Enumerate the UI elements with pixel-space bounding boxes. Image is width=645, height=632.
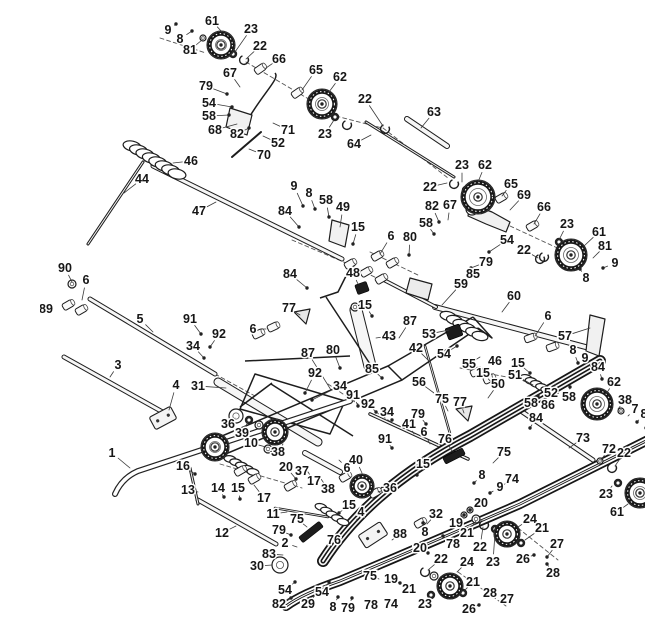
callout-leader [376,337,381,338]
callout-leader [361,135,371,140]
callout-leader [229,526,236,529]
callout-number-13: 13 [181,483,195,497]
callout-number-64: 64 [347,137,361,151]
callout-number-85: 85 [466,267,480,281]
fastener-dot [297,225,300,228]
callout-number-84: 84 [278,204,292,218]
fastener-dot [578,267,581,270]
shaft-rod-fill [90,299,215,374]
callout-number-81: 81 [183,43,197,57]
shaft-rod-fill [366,122,454,177]
fastener-dot [468,508,471,511]
fastener-dot [247,126,250,129]
callout-number-36: 36 [221,417,235,431]
callout-number-9: 9 [612,256,619,270]
callout-number-10: 10 [244,436,258,450]
callout-number-52: 52 [271,136,285,150]
callout-leader [297,193,303,206]
coil-spring-loop [336,517,349,526]
callout-leader [446,406,448,411]
callout-number-58: 58 [524,396,538,410]
fastener-dot [487,250,490,253]
washer-ring [618,408,624,414]
callout-number-8: 8 [570,343,577,357]
bracket-arm [329,220,349,247]
idler-wheel [201,433,229,461]
callout-leader [281,512,287,513]
fastener-dot [528,371,531,374]
idler-wheel [494,521,520,547]
fastener-dot [576,361,579,364]
bushing-spacer [525,219,539,231]
washer-ring [430,572,438,580]
callout-number-79: 79 [479,255,493,269]
callout-leader [302,77,311,90]
callout-number-84: 84 [591,360,605,374]
fastener-dot [305,286,308,289]
callout-leader [476,357,480,360]
retaining-ring [448,178,460,190]
callout-leader [359,467,362,473]
callout-number-84: 84 [529,411,543,425]
callout-number-30: 30 [250,559,264,573]
fastener-dot [327,580,330,583]
callout-leader [249,149,257,152]
callout-leader [488,391,493,398]
callout-number-77: 77 [453,395,467,409]
callout-number-73: 73 [576,431,590,445]
callout-number-92: 92 [308,366,322,380]
callout-leader [82,288,84,300]
fastener-dot [455,344,458,347]
idler-wheel [307,89,337,119]
callout-number-89: 89 [40,302,53,316]
callout-number-8: 8 [330,600,337,614]
callout-number-65: 65 [309,63,323,77]
callout-number-87: 87 [301,346,315,360]
callout-leader [213,89,227,94]
bushing-spacer [74,303,88,315]
fastener-dot [337,511,340,514]
callout-number-63: 63 [427,105,441,119]
fastener-dot [635,420,638,423]
callout-number-17: 17 [307,474,321,488]
callout-number-67: 67 [223,66,237,80]
callout-number-20: 20 [413,541,427,555]
callout-leader [329,83,335,92]
callout-number-14: 14 [211,481,225,495]
callout-number-6: 6 [545,309,552,323]
idler-wheel [262,419,288,445]
callout-number-92: 92 [361,397,375,411]
callout-number-22: 22 [358,92,372,106]
fastener-dot [370,314,373,317]
callout-number-8: 8 [479,468,486,482]
callout-number-15: 15 [358,298,372,312]
bracket-arm [586,315,605,356]
callout-number-17: 17 [257,491,271,505]
callout-leader [623,504,628,507]
shaft-rod-fill [305,453,340,472]
callout-number-54: 54 [437,347,451,361]
fastener-dot [227,113,230,116]
fastener-dot [441,534,444,537]
bushing-spacer [290,86,304,99]
callout-number-6: 6 [344,461,351,475]
washer-ring [255,421,263,429]
callout-number-78: 78 [364,598,378,612]
fastener-dot [380,376,383,379]
fastener-dot [338,366,341,369]
callout-number-11: 11 [266,507,279,521]
callout-leader [263,136,271,140]
fastener-dot [293,580,296,583]
callout-number-79: 79 [272,523,286,537]
fastener-dot [477,603,480,606]
callout-leader [296,279,307,288]
bushing-spacer [494,191,508,203]
callout-number-1: 1 [109,446,116,460]
callout-leader [173,162,183,163]
wheel-axle-hole [360,484,363,487]
callout-number-9: 9 [165,23,172,37]
wheel-axle-hole [638,491,641,494]
callout-leader [206,202,216,207]
callout-leader [399,328,406,338]
callout-number-76: 76 [438,432,452,446]
frame-member [388,366,402,380]
callout-number-8: 8 [583,271,590,285]
callout-number-75: 75 [290,512,304,526]
callout-number-23: 23 [418,597,432,611]
callout-leader [438,183,447,185]
callout-number-75: 75 [363,569,377,583]
callout-leader [235,80,240,87]
callout-number-34: 34 [380,405,394,419]
callout-leader [217,115,229,116]
callout-number-62: 62 [333,70,347,84]
callout-number-65: 65 [504,177,518,191]
bushing-spacer [370,249,384,261]
wheel-axle-hole [273,430,276,433]
idler-wheel [207,31,235,59]
fastener-dot [488,491,491,494]
washer-ring [200,35,206,41]
callout-number-75: 75 [435,392,449,406]
callout-number-55: 55 [462,357,476,371]
callout-number-72: 72 [602,442,616,456]
fastener-dot [350,596,353,599]
mount-plate [358,522,388,549]
callout-number-3: 3 [115,358,122,372]
wear-strip-body [355,281,370,295]
callout-number-12: 12 [215,526,229,540]
callout-number-23: 23 [486,555,500,569]
fastener-dot [310,398,313,401]
callout-number-84: 84 [283,267,297,281]
callout-number-22: 22 [517,243,531,257]
callout-number-44: 44 [135,172,149,186]
callout-number-82: 82 [230,127,244,141]
callout-number-54: 54 [278,583,292,597]
callout-leader [502,302,509,312]
callout-number-2: 2 [282,536,289,550]
fastener-dot [528,426,531,429]
callout-number-58: 58 [562,390,576,404]
callout-number-69: 69 [517,188,531,202]
bracket-arm [406,278,432,300]
callout-number-83: 83 [262,547,276,561]
callout-number-21: 21 [535,521,549,535]
callout-number-22: 22 [434,552,448,566]
callout-number-48: 48 [346,266,360,280]
callout-number-6: 6 [421,425,428,439]
fastener-dot [208,345,211,348]
callout-number-8: 8 [641,407,645,421]
callout-number-79: 79 [341,601,355,615]
callout-number-91: 91 [183,312,197,326]
callout-number-4: 4 [358,505,365,519]
callout-number-40: 40 [349,453,363,467]
callout-leader [196,40,202,45]
mount-plate [149,406,177,430]
washer-ring [472,515,480,523]
callout-number-54: 54 [202,96,216,110]
callout-number-82: 82 [272,597,286,611]
callout-number-80: 80 [326,343,340,357]
callout-number-70: 70 [257,148,271,162]
idler-wheel [461,180,495,214]
callout-number-34: 34 [186,339,200,353]
callout-number-34: 34 [333,379,347,393]
callout-number-76: 76 [327,533,341,547]
shaft-rod-fill [356,310,370,366]
wheel-axle-hole [476,195,479,198]
callout-number-66: 66 [272,52,286,66]
callout-leader [339,460,341,462]
callout-leader [118,458,130,468]
callout-number-9: 9 [497,480,504,494]
idler-wheel [625,478,645,508]
callout-leader [442,290,456,305]
callout-number-23: 23 [244,22,258,36]
wheel-axle-hole [569,253,572,256]
fastener-dot [545,555,548,558]
callout-leader [273,123,281,127]
shaft-rod-fill [198,500,276,544]
callout-number-87: 87 [403,314,417,328]
callout-leader [312,390,333,400]
callout-number-22: 22 [473,540,487,554]
callout-number-9: 9 [291,179,298,193]
fastener-dot [327,215,330,218]
callout-number-60: 60 [507,289,521,303]
bushing-spacer [61,298,75,310]
callout-leader [448,213,449,220]
callout-number-88: 88 [393,527,407,541]
callout-leader [235,36,246,52]
callout-number-27: 27 [500,592,514,606]
callout-leader [573,328,590,334]
callout-number-20: 20 [279,460,293,474]
bearing-washer-hole [519,541,522,544]
callout-number-81: 81 [598,239,612,253]
callout-number-24: 24 [460,555,474,569]
callout-number-6: 6 [250,322,257,336]
callout-number-90: 90 [58,261,72,275]
callout-number-27: 27 [550,537,564,551]
callout-number-50: 50 [491,377,505,391]
callout-number-77: 77 [282,301,296,315]
callout-leader [293,546,297,547]
callout-number-58: 58 [202,109,216,123]
callout-number-71: 71 [281,123,295,137]
fastener-dot [336,595,339,598]
callout-number-6: 6 [388,229,395,243]
callout-number-53: 53 [422,327,436,341]
fastener-dot [390,446,393,449]
callout-number-74: 74 [384,597,398,611]
fastener-dot [568,385,571,388]
wheel-axle-hole [505,532,508,535]
wheel-axle-hole [213,445,216,448]
callout-number-46: 46 [488,354,502,368]
callout-number-91: 91 [346,388,360,402]
callout-number-4: 4 [173,378,180,392]
callout-number-61: 61 [205,16,219,28]
fastener-dot [230,105,233,108]
fastener-dot [202,356,205,359]
callout-number-15: 15 [342,498,356,512]
fastener-dot [174,22,177,25]
fastener-dot [415,473,418,476]
callout-number-29: 29 [301,597,315,611]
fastener-dot [472,481,475,484]
callout-number-23: 23 [599,487,613,501]
callout-number-26: 26 [462,602,476,616]
bushing-spacer [283,479,297,491]
bushing-spacer [267,321,281,333]
bushing-spacer [253,62,267,75]
coil-spring-loop [167,167,187,180]
callout-number-43: 43 [382,329,396,343]
callout-number-80: 80 [403,230,417,244]
callout-number-38: 38 [618,393,632,407]
callout-leader [628,415,629,416]
callout-number-28: 28 [546,566,560,580]
fastener-dot [351,242,354,245]
callout-number-54: 54 [315,585,329,599]
callout-number-47: 47 [192,204,206,218]
callout-number-85: 85 [365,362,379,376]
callout-number-8: 8 [306,186,313,200]
callout-number-67: 67 [443,198,457,212]
callout-number-57: 57 [558,329,572,343]
bearing-washer-hole [247,418,250,421]
callout-number-91: 91 [378,432,392,446]
plate-body [358,522,388,549]
bushing-spacer [385,256,399,268]
callout-number-74: 74 [505,472,519,486]
fastener-dot [601,266,604,269]
frame-member [250,73,276,116]
callout-number-62: 62 [607,375,621,389]
callout-leader [290,217,299,227]
callout-number-15: 15 [231,481,245,495]
retaining-ring [419,566,431,578]
callout-leader [356,280,358,284]
wheel-axle-hole [219,43,222,46]
callout-number-20: 20 [474,496,488,510]
callout-number-15: 15 [351,220,365,234]
callout-leader [425,387,434,393]
callout-number-56: 56 [412,375,426,389]
wheel-axle-hole [320,102,323,105]
callout-number-82: 82 [425,199,439,213]
callout-number-26: 26 [516,552,530,566]
fastener-dot [190,29,193,32]
callout-number-28: 28 [483,586,497,600]
callout-number-22: 22 [617,446,631,460]
callout-number-46: 46 [184,154,198,168]
fastener-dot [437,220,440,223]
retaining-ring [341,119,353,131]
callout-leader [369,106,383,126]
diagram-canvas: 9881612322666765627954586882715270236422… [40,16,645,616]
callout-number-31: 31 [191,379,205,393]
callout-number-8: 8 [422,525,429,539]
fastener-dot [600,377,603,380]
fastener-dot [193,472,196,475]
idler-wheel [437,573,463,599]
bearing-washer-hole [333,115,336,118]
callout-number-23: 23 [318,127,332,141]
fastener-dot [356,404,359,407]
wear-strip [355,281,370,295]
fastener-dot [289,533,292,536]
callout-number-86: 86 [541,398,555,412]
bearing-washer-hole [616,481,619,484]
callout-number-61: 61 [592,225,606,239]
callout-number-23: 23 [455,158,469,172]
callout-number-21: 21 [466,575,480,589]
callout-number-22: 22 [423,180,437,194]
fastener-dot [301,204,304,207]
callout-number-15: 15 [476,366,490,380]
shaft-rod-fill [153,166,342,259]
callout-number-19: 19 [384,572,398,586]
callout-number-21: 21 [402,582,416,596]
callout-number-79: 79 [411,407,425,421]
callout-number-58: 58 [419,216,433,230]
callout-number-42: 42 [409,341,423,355]
bracket-arm [294,309,310,324]
callout-leader [421,118,429,128]
fastener-dot [199,332,202,335]
callout-number-7: 7 [632,402,639,416]
callout-number-49: 49 [336,200,350,214]
exploded-parts-diagram: 9881612322666765627954586882715270236422… [40,16,645,616]
fastener-dot [407,253,410,256]
callout-leader [217,104,232,107]
fastener-dot [432,232,435,235]
callout-number-38: 38 [321,482,335,496]
callout-number-21: 21 [460,526,474,540]
callout-number-62: 62 [478,158,492,172]
callout-number-5: 5 [137,312,144,326]
callout-number-51: 51 [508,368,522,382]
wheel-axle-hole [448,584,451,587]
